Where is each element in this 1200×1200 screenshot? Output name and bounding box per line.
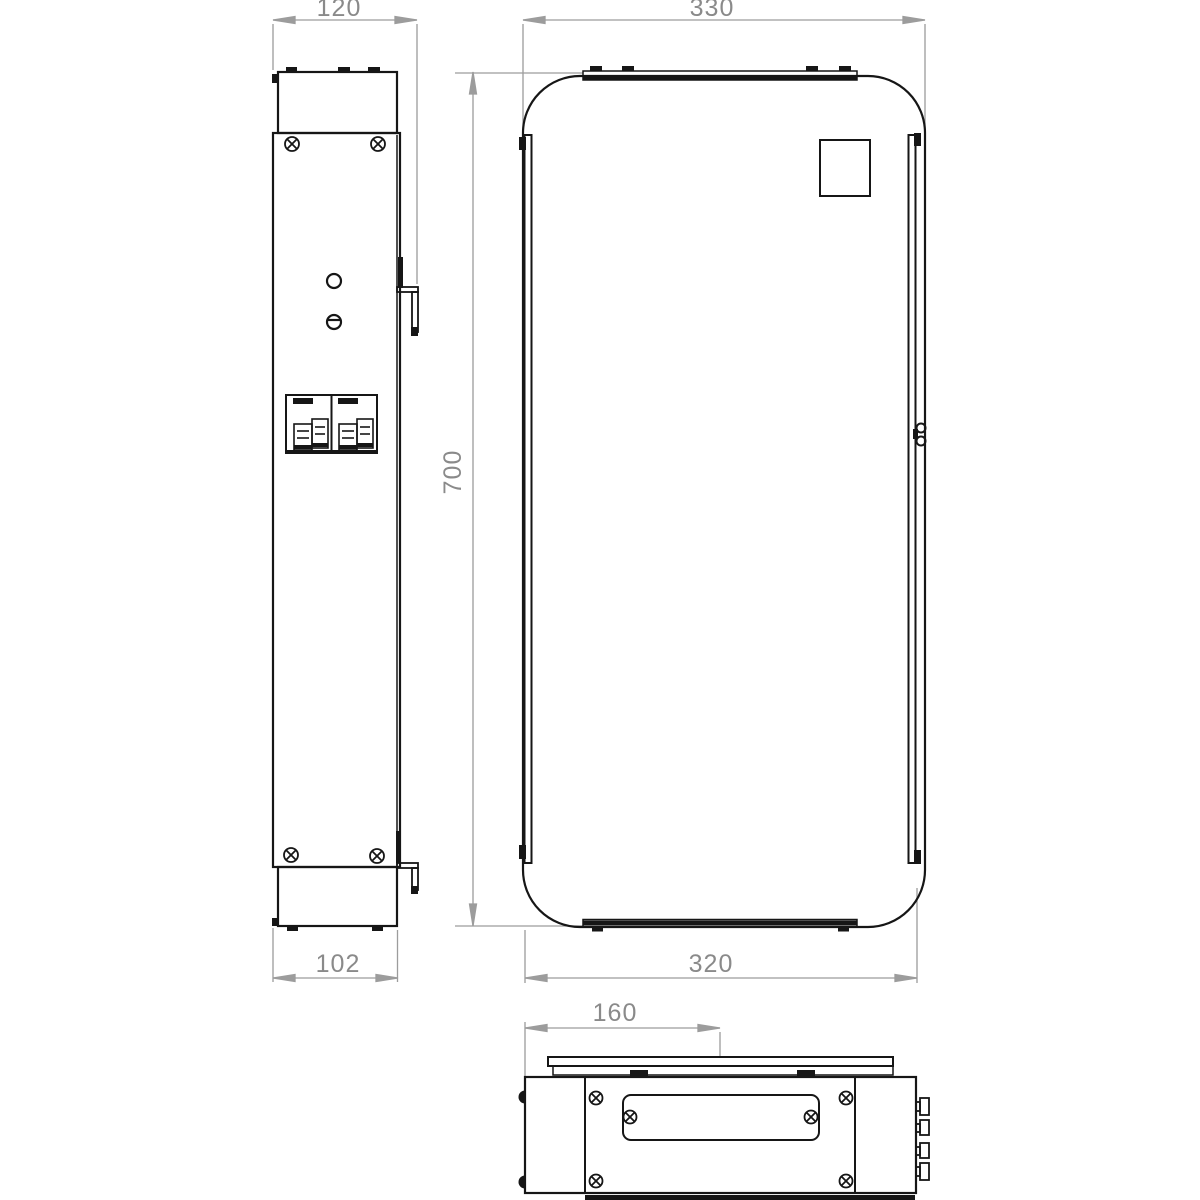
- technical-drawing-canvas: 120 330 700 102: [0, 0, 1200, 1200]
- dim-label-160: 160: [593, 999, 638, 1027]
- dim-label-102: 102: [316, 950, 361, 978]
- dim-label-320: 320: [689, 950, 734, 978]
- drawing-svg: 120 330 700 102: [0, 0, 1200, 1200]
- dim-label-120: 120: [317, 0, 362, 22]
- bottom-cover-lip: [585, 1195, 915, 1200]
- dim-label-330: 330: [690, 0, 735, 22]
- dim-label-700: 700: [439, 450, 467, 495]
